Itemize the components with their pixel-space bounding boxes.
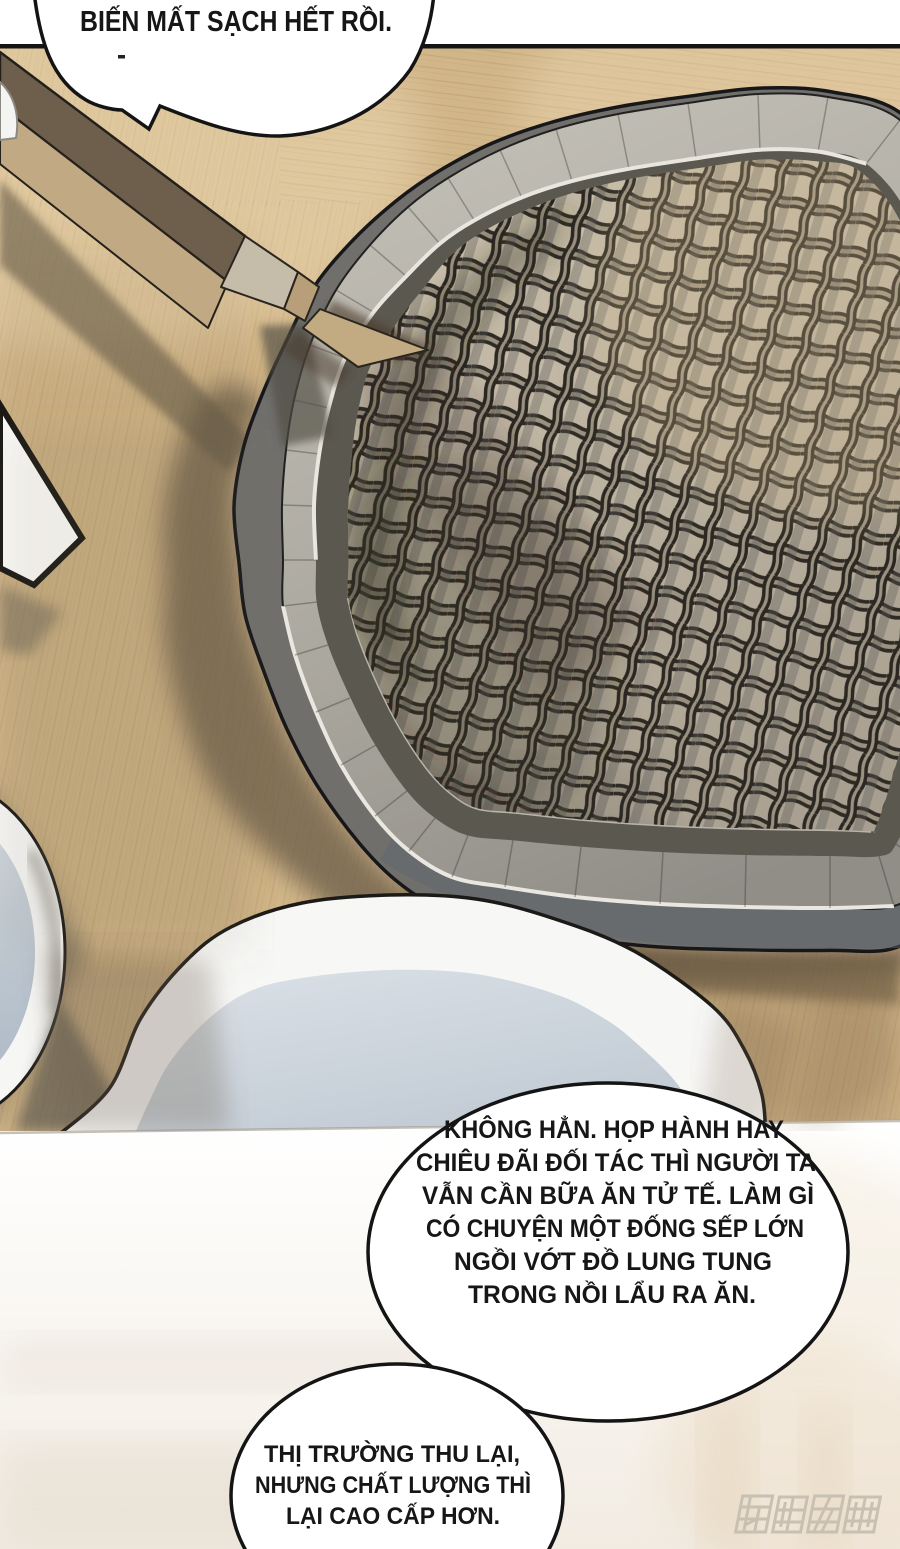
svg-text:CHIÊU ĐÃI ĐỐI TÁC THÌ NGƯỜI TA: CHIÊU ĐÃI ĐỐI TÁC THÌ NGƯỜI TA bbox=[416, 1147, 816, 1177]
svg-text:VẪN CẦN BỮA ĂN TỬ TẾ. LÀM GÌ: VẪN CẦN BỮA ĂN TỬ TẾ. LÀM GÌ bbox=[422, 1180, 814, 1210]
svg-text:CÓ CHUYỆN MỘT ĐỐNG SẾP LỚN: CÓ CHUYỆN MỘT ĐỐNG SẾP LỚN bbox=[426, 1213, 804, 1243]
svg-text:KHÔNG HẲN. HỌP HÀNH HAY: KHÔNG HẲN. HỌP HÀNH HAY bbox=[444, 1114, 784, 1144]
svg-text:TRONG NỒI LẨU RA ĂN.: TRONG NỒI LẨU RA ĂN. bbox=[468, 1279, 756, 1309]
svg-text:THỊ TRƯỜNG THU LẠI,: THỊ TRƯỜNG THU LẠI, bbox=[264, 1440, 520, 1468]
svg-text:LẠI CAO CẤP HƠN.: LẠI CAO CẤP HƠN. bbox=[286, 1502, 500, 1530]
svg-text:BIẾN MẤT SẠCH HẾT RỒI.: BIẾN MẤT SẠCH HẾT RỒI. bbox=[80, 6, 392, 38]
svg-text:NHƯNG CHẤT LƯỢNG THÌ: NHƯNG CHẤT LƯỢNG THÌ bbox=[255, 1471, 531, 1499]
svg-text:NGỒI VỚT ĐỒ LUNG TUNG: NGỒI VỚT ĐỒ LUNG TUNG bbox=[454, 1246, 772, 1276]
